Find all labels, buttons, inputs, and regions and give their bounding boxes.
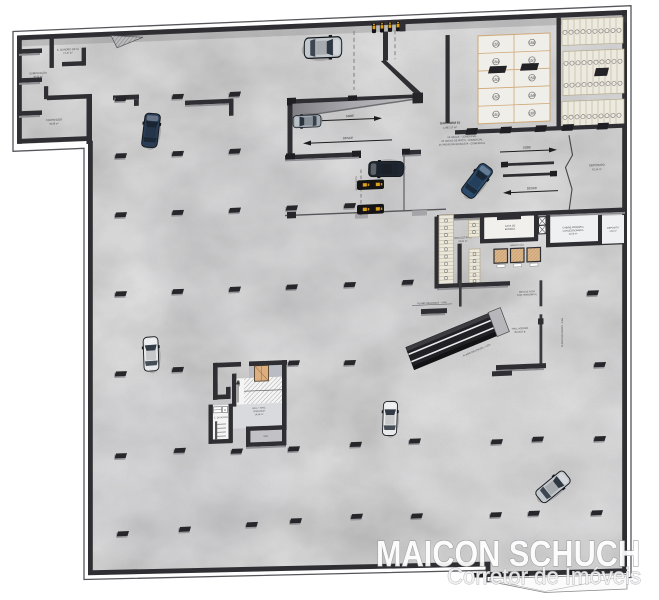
svg-text:GARAGEM: GARAGEM [253, 410, 264, 413]
svg-text:156: 156 [529, 41, 535, 45]
svg-text:Corretor de Imóveis: Corretor de Imóveis [447, 563, 641, 589]
svg-text:BOMBAS: BOMBAS [505, 228, 516, 231]
svg-text:DESCE: DESCE [527, 186, 537, 190]
svg-text:16,56 m²: 16,56 m² [255, 413, 264, 416]
svg-text:160: 160 [529, 111, 535, 115]
svg-text:E. QUADROS: E. QUADROS [214, 416, 228, 420]
svg-text:153: 153 [493, 78, 499, 82]
svg-text:HALL + CIRC.: HALL + CIRC. [252, 406, 266, 410]
svg-text:92,14 m²: 92,14 m² [592, 168, 602, 171]
svg-text:A: A [224, 408, 226, 412]
svg-text:ABRIGO GÁS: ABRIGO GÁS [510, 244, 524, 248]
svg-text:SOBE: SOBE [523, 145, 531, 149]
svg-text:GARAGEM 01: GARAGEM 01 [440, 121, 461, 126]
svg-text:SOBE: SOBE [239, 380, 241, 387]
svg-text:155: 155 [493, 42, 499, 46]
svg-text:DML: DML [264, 436, 269, 438]
svg-text:SOBE: SOBE [346, 114, 354, 118]
svg-text:DESCE: DESCE [343, 136, 353, 140]
svg-text:11,56 m²: 11,56 m² [569, 232, 578, 235]
svg-text:38,88 m²: 38,88 m² [49, 122, 59, 125]
svg-text:DEPÓSITO: DEPÓSITO [607, 226, 619, 229]
svg-text:PLANO INCLINADO - 4,5%: PLANO INCLINADO - 4,5% [561, 317, 564, 347]
svg-text:152: 152 [493, 95, 499, 99]
svg-text:36,96 m²: 36,96 m² [33, 75, 43, 78]
svg-text:151: 151 [493, 113, 499, 117]
svg-text:158: 158 [529, 76, 535, 80]
svg-text:4,69 m²: 4,69 m² [609, 230, 617, 233]
svg-text:58,81 m²: 58,81 m² [458, 240, 467, 243]
svg-text:DEPÓSITO: DEPÓSITO [589, 162, 605, 168]
svg-text:159: 159 [529, 94, 535, 98]
svg-text:154: 154 [493, 60, 499, 64]
svg-text:BLOCO B: BLOCO B [515, 330, 526, 333]
svg-text:1.987,57 m²: 1.987,57 m² [443, 125, 457, 130]
svg-text:17,37 m²: 17,37 m² [63, 51, 73, 54]
svg-text:157: 157 [529, 58, 535, 62]
